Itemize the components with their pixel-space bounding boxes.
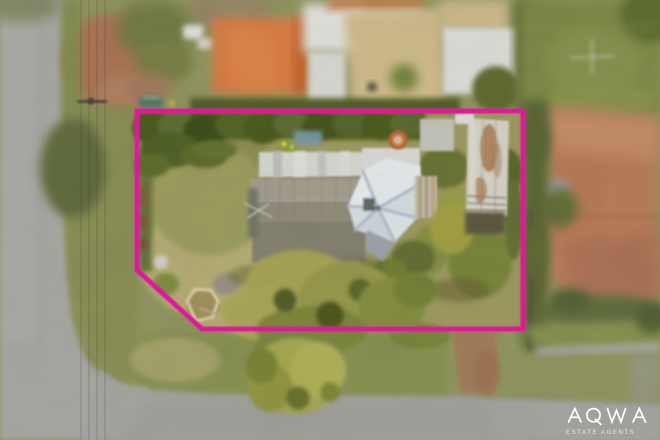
svg-text:ESTATE AGENTS: ESTATE AGENTS (566, 430, 635, 436)
